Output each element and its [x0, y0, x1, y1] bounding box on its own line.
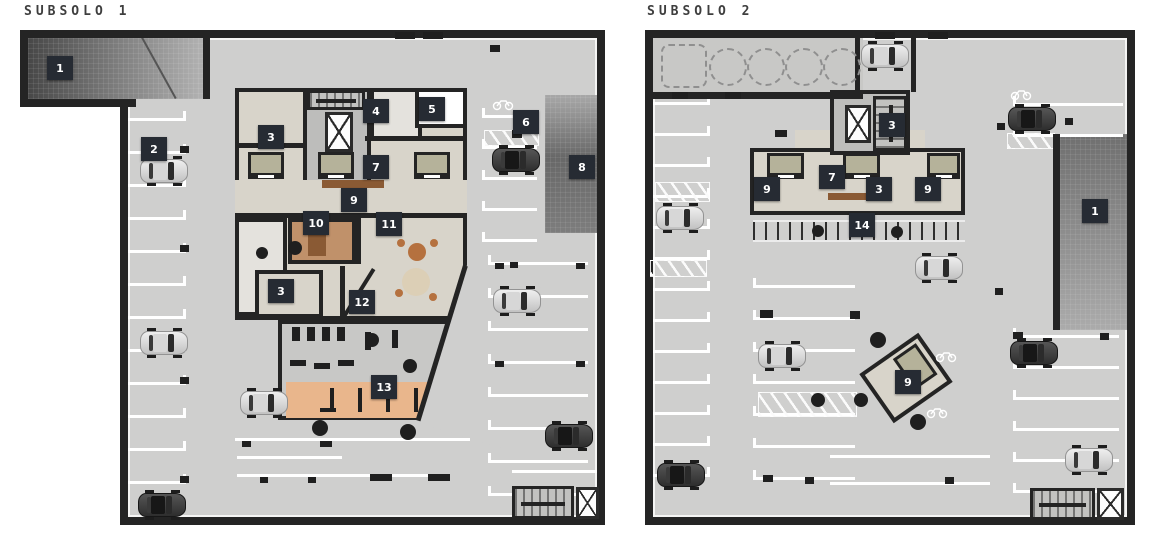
- parking-stall-line: [488, 460, 588, 463]
- wheel-stop: [490, 45, 500, 52]
- car-rear-glass: [149, 335, 153, 351]
- parking-stall-tick: [183, 276, 186, 286]
- no-parking-hatch: [650, 260, 707, 277]
- column: [365, 333, 379, 347]
- no-parking-hatch: [1007, 133, 1055, 149]
- car-windshield: [943, 259, 949, 277]
- car-wheel: [173, 183, 182, 186]
- car-roof: [670, 466, 684, 484]
- number-badge: 3: [879, 113, 905, 137]
- elevator-cab: [930, 156, 957, 173]
- elevator-cab: [846, 156, 877, 173]
- parking-stall-tick: [1013, 390, 1016, 400]
- car-wheel: [1043, 365, 1052, 368]
- elevator-shaft: [325, 112, 353, 152]
- car-rear-glass: [1019, 345, 1023, 361]
- elevator-door: [328, 175, 344, 178]
- column: [910, 414, 926, 430]
- water-tank: [747, 48, 785, 86]
- parking-stall-tick: [707, 374, 710, 384]
- car-wheel: [868, 68, 877, 71]
- car: [545, 423, 593, 449]
- parking-stall-tick: [183, 441, 186, 451]
- wall-segment: [356, 218, 361, 264]
- parking-stall-line: [128, 118, 186, 121]
- column: [256, 247, 268, 259]
- parking-stall-line: [482, 208, 537, 211]
- number-badge: 4: [363, 99, 389, 123]
- car-wheel: [273, 415, 282, 418]
- motorcycle-icon: [935, 348, 957, 362]
- parking-stall-line: [128, 217, 186, 220]
- parking-stall-tick: [482, 170, 485, 180]
- parking-stall-line: [128, 481, 186, 484]
- car-wheel: [690, 487, 699, 490]
- number-badge: 8: [569, 155, 595, 179]
- parking-stall-tick: [488, 453, 491, 463]
- elevator: [767, 153, 804, 179]
- car: [1010, 340, 1058, 366]
- car: [656, 205, 704, 231]
- parking-stall-line: [830, 455, 990, 458]
- car-windshield: [573, 427, 579, 445]
- plan-title-subsolo-1: SUBSOLO 1: [24, 4, 130, 19]
- parking-stall-line: [482, 177, 537, 180]
- car-roof: [771, 347, 785, 365]
- wheel-stop: [672, 92, 688, 99]
- staircase: [512, 486, 574, 519]
- car-wheel: [147, 355, 156, 358]
- motorcycle-icon: [492, 96, 514, 110]
- car-windshield: [521, 292, 527, 310]
- wheel-stop: [320, 441, 332, 447]
- car-rear-glass: [666, 467, 670, 483]
- stair-rail: [1039, 503, 1086, 507]
- car-rear-glass: [924, 260, 928, 276]
- parking-stall-tick: [707, 312, 710, 322]
- car-roof: [153, 334, 167, 352]
- number-badge: 13: [371, 375, 397, 399]
- plan-title-subsolo-2: SUBSOLO 2: [647, 4, 753, 19]
- elevator: [248, 152, 284, 179]
- car-roof: [1021, 110, 1035, 128]
- parking-stall-line: [1013, 397, 1119, 400]
- car-wheel: [525, 172, 534, 175]
- car-roof: [669, 209, 683, 227]
- parking-stall-line: [653, 102, 710, 105]
- wheel-stop: [850, 311, 860, 319]
- car: [915, 255, 963, 281]
- wheel-stop: [180, 146, 189, 153]
- parking-stall-tick: [707, 405, 710, 415]
- car-windshield: [889, 47, 895, 65]
- car-wheel: [791, 368, 800, 371]
- car-wheel: [145, 517, 154, 520]
- car-wheel: [663, 230, 672, 233]
- number-badge: 3: [258, 125, 284, 149]
- car-wheel: [552, 448, 561, 451]
- car-rear-glass: [501, 152, 505, 168]
- parking-stall-tick: [488, 420, 491, 430]
- car-rear-glass: [665, 210, 669, 226]
- car-windshield: [166, 496, 172, 514]
- wall-segment: [203, 38, 210, 99]
- parking-stall-tick: [488, 486, 491, 496]
- wheel-stop: [308, 477, 316, 483]
- parking-stall-line: [128, 415, 186, 418]
- parking-stall-line: [653, 288, 710, 291]
- no-parking-hatch: [655, 182, 710, 202]
- car-wheel: [173, 355, 182, 358]
- floor-plan-subsolo-2: 397391491: [645, 30, 1135, 525]
- number-badge: 9: [341, 188, 367, 212]
- parking-stall-line: [653, 164, 710, 167]
- parking-stall-tick: [183, 210, 186, 220]
- car-windshield: [685, 466, 691, 484]
- parking-stall-line: [1013, 366, 1119, 369]
- gym-equipment: [414, 388, 418, 412]
- elevator-shaft: [845, 105, 871, 143]
- wall-segment: [1053, 134, 1060, 330]
- car-rear-glass: [1074, 452, 1078, 468]
- gym-equipment: [307, 327, 315, 341]
- elevator-cab: [321, 155, 351, 173]
- gym-equipment: [314, 363, 330, 369]
- car-rear-glass: [147, 497, 151, 513]
- gym-equipment: [338, 360, 354, 366]
- wheel-stop: [1100, 333, 1109, 340]
- wheel-stop: [725, 92, 741, 99]
- parking-stall-tick: [707, 343, 710, 353]
- wall-segment: [235, 213, 467, 218]
- wheel-stop: [875, 32, 895, 39]
- elevator: [414, 152, 450, 179]
- gym-equipment: [358, 388, 362, 412]
- number-badge: 1: [47, 56, 73, 80]
- car-wheel: [689, 230, 698, 233]
- parking-stall-tick: [1013, 452, 1016, 462]
- number-badge: 7: [819, 165, 845, 189]
- elevator: [927, 153, 960, 179]
- wheel-stop: [495, 263, 504, 269]
- car-wheel: [1098, 472, 1107, 475]
- parking-stall-tick: [707, 157, 710, 167]
- wheel-stop: [775, 130, 787, 137]
- number-badge: 3: [866, 177, 892, 201]
- column: [403, 359, 417, 373]
- parking-stall-tick: [488, 354, 491, 364]
- water-tank: [785, 48, 823, 86]
- number-badge: 3: [268, 279, 294, 303]
- parking-stall-line: [128, 382, 186, 385]
- car: [1008, 106, 1056, 132]
- wall-segment: [911, 38, 916, 92]
- car-wheel: [664, 487, 673, 490]
- page: SUBSOLO 1 SUBSOLO 2 123456789101131213 3…: [0, 0, 1154, 548]
- number-badge: 10: [303, 211, 329, 235]
- parking-stall-tick: [753, 278, 756, 288]
- car-wheel: [1041, 131, 1050, 134]
- ramp-slope-line: [140, 35, 177, 99]
- parking-stall-line: [128, 283, 186, 286]
- car: [1065, 447, 1113, 473]
- car-roof: [505, 151, 519, 169]
- parking-stall-line: [128, 250, 186, 253]
- car-wheel: [1015, 131, 1024, 134]
- parking-stall-line: [488, 394, 588, 397]
- parking-stall-tick: [488, 387, 491, 397]
- car-rear-glass: [767, 348, 771, 364]
- wheel-stop: [495, 361, 504, 367]
- wheel-stop: [180, 377, 189, 384]
- parking-stall-tick: [753, 438, 756, 448]
- car-roof: [1023, 344, 1037, 362]
- car-wheel: [147, 183, 156, 186]
- stair-rail: [316, 99, 356, 103]
- column: [870, 332, 886, 348]
- column: [812, 225, 824, 237]
- staircase: [307, 90, 365, 110]
- elevator-cab: [417, 155, 447, 173]
- wall-segment: [20, 30, 28, 107]
- elevator-shaft: [576, 487, 599, 519]
- car-wheel: [948, 280, 957, 283]
- parking-stall-tick: [753, 470, 756, 480]
- car-wheel: [247, 415, 256, 418]
- elevator-door: [778, 175, 794, 178]
- car-windshield: [1036, 110, 1042, 128]
- water-tank: [709, 48, 747, 86]
- number-badge: 7: [363, 155, 389, 179]
- gym-equipment: [337, 327, 345, 341]
- parking-stall-line: [235, 438, 470, 441]
- car: [140, 158, 188, 184]
- parking-stall-tick: [1013, 421, 1016, 431]
- parking-stall-tick: [707, 126, 710, 136]
- car-wheel: [500, 313, 509, 316]
- furniture: [430, 239, 438, 247]
- parking-stall-tick: [183, 111, 186, 121]
- car: [140, 330, 188, 356]
- number-badge: 6: [513, 110, 539, 134]
- furniture: [395, 289, 403, 297]
- car: [492, 147, 540, 173]
- car-windshield: [786, 347, 792, 365]
- parking-stall-line: [237, 456, 342, 459]
- parking-stall-line: [653, 319, 710, 322]
- no-parking-hatch: [758, 392, 857, 417]
- elevator: [318, 152, 354, 179]
- parking-stall-tick: [183, 309, 186, 319]
- parking-stall-line: [488, 328, 588, 331]
- gym-equipment: [320, 408, 336, 412]
- car-windshield: [1038, 344, 1044, 362]
- car-rear-glass: [502, 293, 506, 309]
- parking-stall-line: [653, 381, 710, 384]
- parking-stall-tick: [753, 406, 756, 416]
- car-windshield: [168, 162, 174, 180]
- car-rear-glass: [1017, 111, 1021, 127]
- car-wheel: [1072, 472, 1081, 475]
- number-badge: 1: [1082, 199, 1108, 223]
- water-tank: [661, 44, 707, 88]
- car-wheel: [499, 172, 508, 175]
- parking-stall-tick: [488, 255, 491, 265]
- furniture: [408, 243, 426, 261]
- parking-stall-tick: [753, 342, 756, 352]
- parking-stall-line: [1013, 428, 1119, 431]
- wheel-stop: [928, 32, 948, 39]
- wheel-stop: [510, 262, 518, 268]
- parking-stall-line: [830, 482, 990, 485]
- car: [657, 462, 705, 488]
- number-badge: 2: [141, 137, 167, 161]
- wheel-stop: [395, 32, 415, 39]
- parking-stall-line: [653, 412, 710, 415]
- parking-stall-tick: [482, 201, 485, 211]
- parking-stall-tick: [183, 408, 186, 418]
- parking-stall-tick: [707, 250, 710, 260]
- column: [400, 424, 416, 440]
- floor-plan-subsolo-1: 123456789101131213: [20, 30, 605, 525]
- wheel-stop: [576, 361, 585, 367]
- wheel-stop: [180, 245, 189, 252]
- parking-stall-line: [653, 443, 710, 446]
- car-roof: [1078, 451, 1092, 469]
- parking-stall-tick: [488, 288, 491, 298]
- wheel-stop: [370, 474, 392, 481]
- car-wheel: [765, 368, 774, 371]
- parking-stall-tick: [707, 281, 710, 291]
- parking-stall-line: [753, 381, 855, 384]
- number-badge: 5: [419, 97, 445, 121]
- car-roof: [253, 394, 267, 412]
- number-badge: 9: [915, 177, 941, 201]
- wheel-stop: [260, 477, 268, 483]
- parking-stall-tick: [753, 310, 756, 320]
- parking-stall-tick: [1013, 483, 1016, 493]
- motorcycle-icon: [926, 404, 948, 418]
- parking-stall-line: [128, 448, 186, 451]
- elevator-door: [258, 175, 274, 178]
- car-roof: [151, 496, 165, 514]
- parking-stall-line: [753, 445, 855, 448]
- car-rear-glass: [149, 163, 153, 179]
- number-badge: 12: [349, 290, 375, 314]
- parking-stall-line: [482, 239, 537, 242]
- staircase: [1030, 488, 1095, 520]
- wheel-stop: [997, 123, 1005, 130]
- car-roof: [928, 259, 942, 277]
- car-windshield: [168, 334, 174, 352]
- parking-stall-line: [653, 350, 710, 353]
- ramp: [1060, 134, 1127, 330]
- gym-equipment: [322, 327, 330, 341]
- car: [861, 43, 909, 69]
- car: [138, 492, 186, 518]
- car-wheel: [171, 517, 180, 520]
- car: [758, 343, 806, 369]
- furniture: [402, 268, 430, 296]
- car: [493, 288, 541, 314]
- car-wheel: [894, 68, 903, 71]
- parking-stall-tick: [482, 232, 485, 242]
- wheel-stop: [995, 288, 1003, 295]
- parking-stall-tick: [707, 219, 710, 229]
- car-rear-glass: [554, 428, 558, 444]
- wheel-stop: [242, 441, 251, 447]
- wall-segment: [20, 30, 210, 38]
- car-roof: [506, 292, 520, 310]
- elevator-door: [424, 175, 440, 178]
- gym-equipment: [292, 327, 300, 341]
- car-windshield: [520, 151, 526, 169]
- parking-stall-tick: [707, 467, 710, 477]
- wheel-stop: [423, 32, 443, 39]
- car-rear-glass: [870, 48, 874, 64]
- car-windshield: [684, 209, 690, 227]
- wheel-stop: [760, 310, 773, 318]
- car-windshield: [268, 394, 274, 412]
- parking-stall-line: [512, 470, 597, 473]
- wheel-stop: [805, 477, 814, 484]
- number-badge: 14: [849, 213, 875, 237]
- column: [312, 420, 328, 436]
- number-badge: 11: [376, 212, 402, 236]
- parking-stall-tick: [753, 374, 756, 384]
- car: [240, 390, 288, 416]
- furniture: [397, 239, 405, 247]
- furniture: [429, 293, 437, 301]
- column: [288, 241, 302, 255]
- car-windshield: [1093, 451, 1099, 469]
- parking-stall-line: [128, 316, 186, 319]
- column: [811, 393, 825, 407]
- column: [854, 393, 868, 407]
- car-roof: [874, 47, 888, 65]
- gym-equipment: [392, 330, 398, 348]
- parking-stall-line: [753, 285, 855, 288]
- parking-stall-line: [653, 133, 710, 136]
- wall-segment: [365, 136, 467, 141]
- number-badge: 9: [895, 370, 921, 394]
- wheel-stop: [428, 474, 450, 481]
- wheel-stop: [1065, 118, 1073, 125]
- wheel-stop: [945, 477, 954, 484]
- car-wheel: [526, 313, 535, 316]
- bench: [322, 180, 384, 188]
- parking-stall-tick: [482, 108, 485, 118]
- motorcycle-icon: [1010, 86, 1032, 100]
- wheel-stop: [763, 475, 773, 482]
- parking-stall-tick: [488, 321, 491, 331]
- wheel-stop: [576, 263, 585, 269]
- water-tank: [823, 48, 861, 86]
- car-rear-glass: [249, 395, 253, 411]
- car-wheel: [1017, 365, 1026, 368]
- elevator-shaft: [1097, 488, 1124, 520]
- elevator-cab: [251, 155, 281, 173]
- elevator: [843, 153, 880, 179]
- parking-stall-tick: [707, 436, 710, 446]
- car-wheel: [922, 280, 931, 283]
- wheel-stop: [180, 476, 189, 483]
- stair-rail: [521, 502, 565, 506]
- elevator-cab: [770, 156, 801, 173]
- car-wheel: [578, 448, 587, 451]
- wall-segment: [20, 99, 136, 107]
- column: [891, 226, 903, 238]
